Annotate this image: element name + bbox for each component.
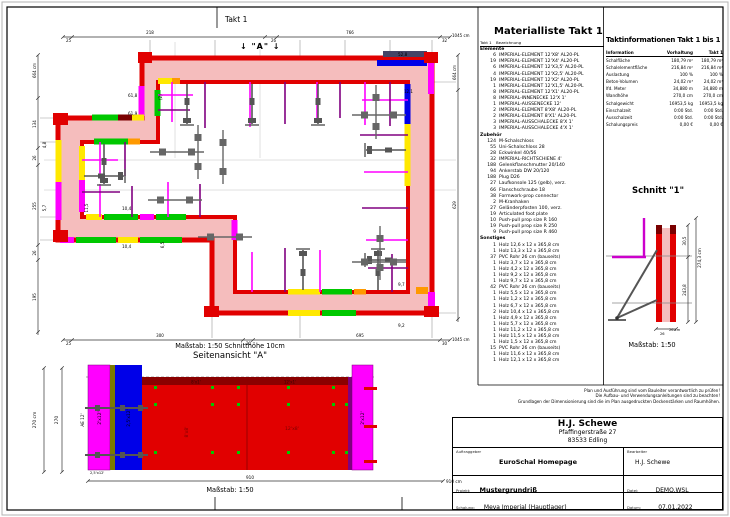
taktinfo-col-information: Information <box>606 50 657 55</box>
materialliste-row: 1Holz 12,1 x 12 x 365,8 cm <box>480 358 604 364</box>
taktinfo-cell: Beton-Volumen <box>606 78 657 85</box>
taktinfo-cell: 0:00 Std. <box>657 107 693 114</box>
taktinfo: Taktinformationen Takt 1 bis 1 Informati… <box>606 36 723 128</box>
side-view-label: 12'x1' <box>284 380 296 385</box>
plan-dim-label: 26 <box>32 155 37 161</box>
plan-dim-label: 664 cm <box>32 63 37 78</box>
taktinfo-cell: Schalelementfläche <box>606 64 657 71</box>
taktinfo-row: Schalelementfläche216,84 m²216,84 m² <box>606 64 723 71</box>
cell-schalung: Schalung: Meva Imperial (Hauptlager) <box>453 493 624 509</box>
side-view-scale: Maßstab: 1:50 <box>165 486 295 494</box>
side-view-label: 12'x8' <box>285 426 299 432</box>
materialliste: Materialliste Takt 1 Takt 1 Bezeichnung … <box>480 26 604 364</box>
bearbeiter-label: Bearbeiter <box>627 449 719 454</box>
taktinfo-col-takt1: Takt 1 <box>693 50 723 55</box>
plan-scale-note: Maßstab: 1:50 Schnitthöhe 10cm <box>130 342 330 350</box>
side-view-label: 8'x8' <box>184 426 190 437</box>
cell-auftraggeber: Auftraggeber EuroSchal Homepage <box>453 448 624 475</box>
taktinfo-row: lfd. Meter34,880 m34,880 m <box>606 85 723 92</box>
side-view-label: 270 cm <box>32 412 38 428</box>
taktinfo-row: Auslastung100 %100 % <box>606 71 723 78</box>
plan-dim-label: 25 <box>66 38 72 43</box>
taktinfo-rows: Schalfläche180,79 m²180,79 m²Schalelemen… <box>606 57 723 128</box>
taktinfo-col-vorhaltung: Vorhaltung <box>657 50 693 55</box>
plan-dim-label: 9,7 <box>398 282 405 287</box>
taktinfo-cell: Auslastung <box>606 71 657 78</box>
plan-dim-label: 695 <box>356 333 364 338</box>
schnitt-dim-label: 274,3 cm <box>697 248 702 268</box>
taktinfo-row: Ausschalzeit0:00 Std.0:00 Std. <box>606 114 723 121</box>
schnitt-scale: Maßstab: 1:50 <box>602 341 702 349</box>
taktinfo-header: Information Vorhaltung Takt 1 <box>606 50 723 57</box>
schnitt-title: Schnitt "1" <box>608 186 708 196</box>
plan-dim-label: 10,4 <box>122 244 132 249</box>
plan-dim-label: 61,9 <box>128 111 138 116</box>
title-block-company: H.J. Schewe Pfaffingerstraße 27 83533 Ed… <box>453 418 722 448</box>
item-label: Push-pull prop size R 460 <box>499 230 604 236</box>
materialliste-header: Takt 1 Bezeichnung <box>480 40 604 47</box>
plan-dim-label: 61,8 <box>128 93 138 98</box>
taktinfo-cell: 216,84 m² <box>693 64 723 71</box>
plan-dim-label: 255 <box>32 202 37 210</box>
bearbeiter-value: H.J. Schewe <box>635 459 719 466</box>
side-view-title: Seitenansicht "A" <box>130 351 330 361</box>
materialliste-header-takt: Takt 1 <box>480 40 496 45</box>
taktinfo-cell: 0:00 Std. <box>693 107 723 114</box>
plan-dim-label: 25 <box>66 341 72 346</box>
plan-dim-label: (2) <box>158 94 163 100</box>
taktinfo-cell: Schalfläche <box>606 57 657 64</box>
taktinfo-cell: 0,00 € <box>657 121 693 128</box>
plan-dim-label: 134 <box>32 120 37 128</box>
taktinfo-cell: 34,880 m <box>657 85 693 92</box>
taktinfo-cell: 16953,5 kg <box>657 100 693 107</box>
plan-dim-label: 218 <box>146 30 154 35</box>
plan-dim-label: 664 cm <box>452 65 457 80</box>
taktinfo-cell: 0,00 € <box>693 121 723 128</box>
side-view-label: 2'x12' <box>360 411 366 424</box>
taktinfo-cell: 24,02 m³ <box>657 78 693 85</box>
auftraggeber-label: Auftraggeber <box>456 449 620 454</box>
taktinfo-cell: 270,0 cm <box>693 92 723 99</box>
side-view-label: 2'x12' <box>97 411 103 424</box>
item-qty: 1 <box>480 358 499 364</box>
taktinfo-cell: Schalgewicht <box>606 100 657 107</box>
plan-dim-label: 195 <box>32 293 37 301</box>
plan-dim-label: 11,5 <box>84 203 89 212</box>
plan-dim-label: 300 <box>156 333 164 338</box>
company-street: Pfaffingerstraße 27 <box>453 429 722 437</box>
side-view-label: 270 <box>54 416 60 425</box>
materialliste-row: 3IMPERIAL-AUSSCHALECKE 4'X 1' <box>480 126 604 132</box>
taktinfo-cell: Einschalzeit <box>606 107 657 114</box>
side-view-label: 8'x1' <box>191 380 201 385</box>
taktinfo-cell: Ausschalzeit <box>606 114 657 121</box>
plan-dim-label: 629 <box>452 201 457 209</box>
plan-title: Takt 1 <box>225 15 247 24</box>
plan-dim-label: 5,7 <box>42 204 47 211</box>
disclaimer: Plan und Ausführung sind vom Bauleiter v… <box>480 388 720 404</box>
disclaimer-line: Grundlagen der Dimensionierung sind die … <box>480 399 720 404</box>
taktinfo-cell: Wandhöhe <box>606 92 657 99</box>
materialliste-rows: Elemente6IMPERIAL-ELEMENT 12'X8' AL20-PL… <box>480 47 604 364</box>
plan-dim-label: 30 <box>442 341 448 346</box>
cell-bearbeiter: Bearbeiter H.J. Schewe <box>624 448 722 475</box>
materialliste-title: Materialliste Takt 1 <box>480 26 604 37</box>
item-label: Holz 12,1 x 12 x 365,8 cm <box>499 358 604 364</box>
schnitt-dim-label: 30,5 <box>682 236 687 245</box>
schalung-label: Schalung: <box>456 505 475 510</box>
cell-projekt: Projekt: Mustergrundriß <box>453 476 624 492</box>
plan-dim-label: 12,1 <box>404 89 413 94</box>
side-view-label: 2,5'x12' <box>90 471 104 475</box>
taktinfo-cell: 0:00 Std. <box>657 114 693 121</box>
auftraggeber-value: EuroSchal Homepage <box>456 458 620 466</box>
taktinfo-cell: 180,79 m² <box>657 57 693 64</box>
cell-datei: Datei: DEMO.WSL <box>624 476 722 492</box>
plan-dim-label: 6,5 <box>160 241 165 248</box>
plan-dim-label: 1045 cm <box>452 337 470 342</box>
section-a-marker: ↓ "A" ↓ <box>240 42 281 51</box>
plan-dim-label: 52,8 <box>398 52 408 57</box>
taktinfo-title: Taktinformationen Takt 1 bis 1 <box>606 36 723 44</box>
schnitt-dim-label: 26 cm <box>669 328 681 332</box>
taktinfo-cell: 24,02 m³ <box>693 78 723 85</box>
taktinfo-cell: 180,79 m² <box>693 57 723 64</box>
taktinfo-cell: 216,84 m² <box>657 64 693 71</box>
schnitt-dim-label: 243,8 <box>682 284 687 296</box>
taktinfo-cell: 100 % <box>657 71 693 78</box>
taktinfo-row: Beton-Volumen24,02 m³24,02 m³ <box>606 78 723 85</box>
side-view-label: 2,5'x12' <box>126 409 132 427</box>
taktinfo-row: Schalgewicht16953,5 kg16953,5 kg <box>606 100 723 107</box>
taktinfo-cell: 0:00 Std. <box>693 114 723 121</box>
plan-view <box>36 35 460 342</box>
plan-dim-label: 32 <box>442 38 448 43</box>
schnitt-view <box>606 216 698 331</box>
side-view-label: 910 <box>246 475 254 480</box>
taktinfo-cell: lfd. Meter <box>606 85 657 92</box>
taktinfo-row: Schalungspreis0,00 €0,00 € <box>606 121 723 128</box>
title-block: H.J. Schewe Pfaffingerstraße 27 83533 Ed… <box>452 417 723 510</box>
schnitt-dim-label: 26 <box>660 332 665 336</box>
taktinfo-cell: 16953,5 kg <box>693 100 723 107</box>
taktinfo-cell: 270,0 cm <box>657 92 693 99</box>
company-city: 83533 Edling <box>453 437 722 445</box>
schalung-value: Meva Imperial (Hauptlager) <box>484 504 567 511</box>
drawing-sheet: { "colors": { "formwork_red": "#e10000",… <box>0 0 730 517</box>
plan-dim-label: 10,4 <box>122 206 132 211</box>
taktinfo-cell: 34,880 m <box>693 85 723 92</box>
taktinfo-row: Einschalzeit0:00 Std.0:00 Std. <box>606 107 723 114</box>
item-qty: 3 <box>480 126 499 132</box>
taktinfo-cell: 100 % <box>693 71 723 78</box>
plan-dim-label: 4,8 <box>42 141 47 148</box>
taktinfo-row: Schalfläche180,79 m²180,79 m² <box>606 57 723 64</box>
taktinfo-row: Wandhöhe270,0 cm270,0 cm <box>606 92 723 99</box>
datum-label: Datum: <box>627 505 641 510</box>
materialliste-header-bezeichnung: Bezeichnung <box>496 40 521 45</box>
plan-dim-label: 1045 cm <box>452 33 470 38</box>
cell-datum: Datum: 07.01.2022 <box>624 493 722 509</box>
plan-dim-label: 9,2 <box>398 323 405 328</box>
side-view-label: AE 12' <box>80 413 85 426</box>
plan-dim-label: 26 <box>32 250 37 256</box>
item-label: IMPERIAL-AUSSCHALECKE 4'X 1' <box>499 126 604 132</box>
datum-value: 07.01.2022 <box>658 504 692 511</box>
plan-dim-label: 766 <box>346 30 354 35</box>
taktinfo-cell: Schalungspreis <box>606 121 657 128</box>
company-name: H.J. Schewe <box>453 419 722 429</box>
